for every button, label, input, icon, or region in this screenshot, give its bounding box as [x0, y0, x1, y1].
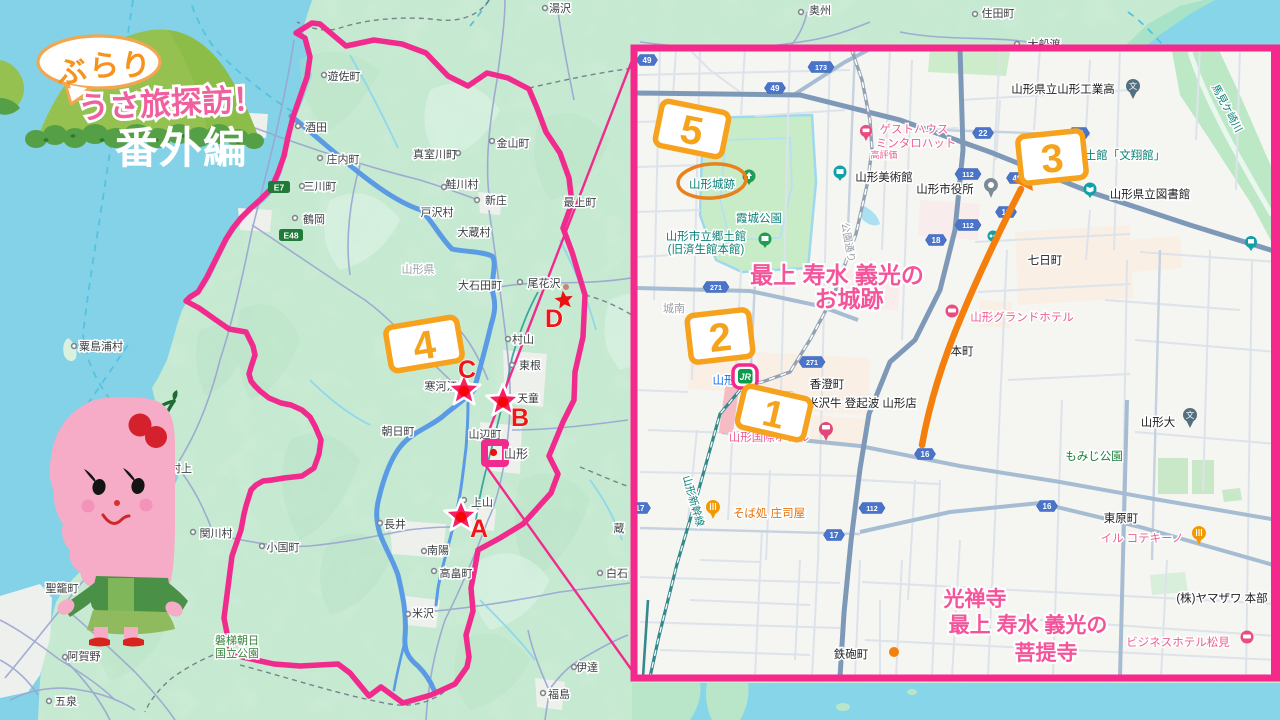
svg-text:真室川町: 真室川町 [413, 147, 457, 161]
svg-text:112: 112 [962, 170, 974, 179]
svg-text:もみじ公園: もみじ公園 [1065, 450, 1123, 463]
svg-text:49: 49 [643, 56, 652, 65]
svg-text:文: 文 [1186, 410, 1195, 420]
svg-text:湯沢: 湯沢 [549, 1, 571, 15]
svg-text:最上 寿水 義光の: 最上 寿水 義光の [750, 262, 924, 288]
svg-text:ゲストハウス: ゲストハウス [880, 123, 949, 136]
svg-text:大石田町: 大石田町 [458, 278, 502, 292]
svg-text:お城跡: お城跡 [815, 286, 884, 312]
svg-text:天童: 天童 [517, 391, 539, 405]
svg-text:阿賀野: 阿賀野 [68, 650, 101, 663]
svg-text:東原町: 東原町 [1104, 512, 1139, 525]
svg-text:米沢: 米沢 [412, 606, 434, 620]
svg-text:山形市役所: 山形市役所 [916, 182, 974, 196]
svg-text:番外編: 番外編 [115, 125, 247, 173]
svg-text:D: D [545, 305, 563, 333]
svg-text:上山: 上山 [471, 496, 493, 509]
svg-text:鉄砲町: 鉄砲町 [834, 647, 869, 661]
svg-text:山形城跡: 山形城跡 [689, 177, 735, 191]
svg-text:福島: 福島 [548, 687, 570, 701]
svg-text:22: 22 [979, 129, 988, 138]
svg-text:尾花沢: 尾花沢 [528, 276, 561, 290]
svg-text:18: 18 [932, 236, 941, 245]
svg-text:聖籠町: 聖籠町 [46, 581, 79, 595]
svg-text:ミンタロハット: ミンタロハット [876, 137, 957, 150]
svg-text:173: 173 [815, 63, 827, 72]
svg-text:米沢牛 登起波 山形店: 米沢牛 登起波 山形店 [807, 396, 917, 410]
svg-text:遊佐町: 遊佐町 [328, 69, 361, 83]
svg-text:朝日町: 朝日町 [382, 425, 415, 438]
svg-text:住田町: 住田町 [982, 6, 1015, 20]
svg-text:南陽: 南陽 [427, 544, 449, 557]
svg-text:蔵: 蔵 [614, 522, 625, 535]
svg-text:粟島浦村: 粟島浦村 [79, 339, 123, 353]
svg-text:霞城公園: 霞城公園 [736, 212, 782, 225]
svg-text:戸沢村: 戸沢村 [421, 205, 454, 219]
svg-text:B: B [511, 404, 529, 432]
svg-text:E48: E48 [283, 231, 298, 241]
svg-text:山形市立郷土館: 山形市立郷土館 [666, 229, 747, 243]
svg-text:49: 49 [771, 84, 780, 93]
svg-text:ビジネスホテル松見: ビジネスホテル松見 [1126, 635, 1230, 649]
svg-text:文: 文 [1129, 81, 1138, 91]
svg-text:新庄: 新庄 [485, 193, 507, 207]
svg-text:イル コテキーノ: イル コテキーノ [1100, 533, 1183, 545]
svg-text:酒田: 酒田 [305, 121, 327, 134]
svg-text:112: 112 [962, 221, 974, 230]
svg-text:奥州: 奥州 [809, 3, 831, 17]
svg-text:ら: ら [89, 49, 120, 83]
svg-text:関川村: 関川村 [200, 526, 233, 540]
svg-text:山形美術館: 山形美術館 [855, 170, 913, 184]
svg-text:JR: JR [740, 372, 752, 382]
svg-text:金山町: 金山町 [497, 136, 530, 150]
svg-text:E7: E7 [274, 183, 285, 193]
svg-text:七日町: 七日町 [1028, 254, 1063, 267]
svg-text:山形大: 山形大 [1141, 415, 1176, 429]
svg-text:山形グランドホテル: 山形グランドホテル [970, 310, 1074, 324]
svg-text:そば処 庄司屋: そば処 庄司屋 [733, 506, 805, 520]
svg-text:最上町: 最上町 [564, 196, 597, 209]
svg-text:長井: 長井 [384, 517, 406, 531]
svg-text:白石: 白石 [606, 566, 628, 580]
svg-text:271: 271 [806, 358, 818, 367]
svg-text:山形県立図書館: 山形県立図書館 [1110, 187, 1191, 201]
svg-text:山形県立山形工業高: 山形県立山形工業高 [1011, 82, 1115, 96]
svg-text:A: A [470, 515, 488, 543]
svg-text:17: 17 [830, 531, 839, 540]
svg-text:本町: 本町 [951, 344, 974, 358]
svg-text:五泉: 五泉 [55, 694, 77, 708]
svg-text:山形: 山形 [504, 447, 528, 461]
svg-text:土館「文翔館」: 土館「文翔館」 [1085, 148, 1166, 162]
svg-text:り: り [119, 48, 152, 84]
svg-text:東根: 東根 [519, 358, 541, 372]
svg-text:菩提寺: 菩提寺 [1015, 641, 1078, 665]
svg-text:大蔵村: 大蔵村 [458, 225, 491, 239]
svg-text:(旧済生館本館): (旧済生館本館) [668, 242, 745, 256]
svg-text:ぶ: ぶ [53, 53, 89, 91]
svg-text:3: 3 [1039, 136, 1066, 182]
svg-text:三川町: 三川町 [304, 181, 337, 193]
svg-text:高畠町: 高畠町 [440, 566, 473, 580]
svg-text:高評価: 高評価 [870, 149, 897, 160]
svg-text:庄内町: 庄内町 [327, 152, 360, 166]
svg-text:伊達: 伊達 [576, 661, 598, 674]
svg-text:山形県: 山形県 [402, 263, 435, 276]
svg-text:光禅寺: 光禅寺 [943, 587, 1007, 611]
svg-text:鶴岡: 鶴岡 [303, 212, 325, 226]
svg-text:16: 16 [1043, 502, 1052, 511]
svg-text:国立公園: 国立公園 [215, 646, 259, 660]
svg-text:鮭川村: 鮭川村 [446, 177, 479, 191]
svg-text:村山: 村山 [512, 332, 534, 346]
svg-text:磐梯朝日: 磐梯朝日 [215, 633, 259, 647]
svg-text:271: 271 [710, 283, 722, 292]
svg-text:小国町: 小国町 [267, 541, 300, 554]
svg-text:16: 16 [921, 450, 930, 459]
svg-text:城南: 城南 [663, 302, 685, 315]
svg-text:香澄町: 香澄町 [810, 377, 845, 391]
svg-text:最上 寿水 義光の: 最上 寿水 義光の [949, 613, 1108, 637]
svg-text:112: 112 [866, 504, 878, 513]
svg-text:(株)ヤマザワ 本部: (株)ヤマザワ 本部 [1176, 591, 1267, 605]
